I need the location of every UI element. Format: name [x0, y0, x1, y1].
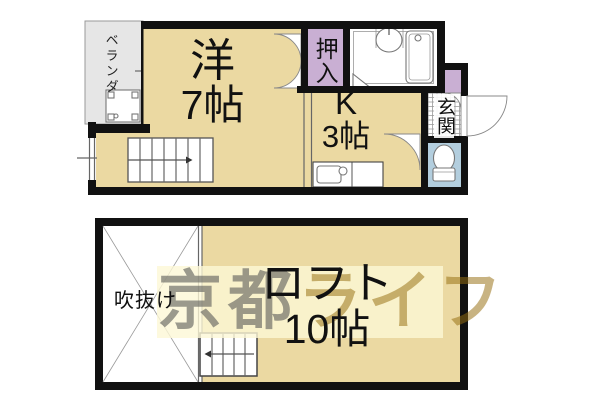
- loft-size: 10帖: [257, 307, 397, 351]
- shoe-box-area: [445, 70, 461, 93]
- closet-label: 押入: [313, 31, 337, 91]
- floorplan: 京都ライフ ベランダ 洋 7帖 押入 K 3帖 玄関 吹抜け ロフト 10帖: [0, 0, 600, 400]
- entrance-label: 玄関: [434, 94, 454, 138]
- veranda-label: ベランダ: [104, 29, 118, 99]
- loft-name: ロフト: [257, 260, 397, 307]
- void-label: 吹抜け: [114, 291, 177, 312]
- room-name: 洋: [145, 38, 280, 84]
- kitchen-sink-icon: [313, 162, 383, 187]
- washbasin-icon: [376, 28, 403, 52]
- stairs-down-icon: [200, 333, 257, 376]
- entrance-door-icon: [467, 96, 507, 136]
- kitchen-size: 3帖: [306, 120, 386, 153]
- window-icon: [77, 138, 97, 180]
- bathtub-icon: [406, 31, 433, 83]
- stairs-up-icon: [128, 138, 213, 182]
- kitchen-label: K 3帖: [306, 86, 386, 153]
- toilet-icon: [433, 145, 455, 181]
- room-size: 7帖: [145, 84, 280, 126]
- room-label: 洋 7帖: [145, 38, 280, 126]
- loft-label: ロフト 10帖: [257, 260, 397, 351]
- kitchen-name: K: [306, 86, 386, 120]
